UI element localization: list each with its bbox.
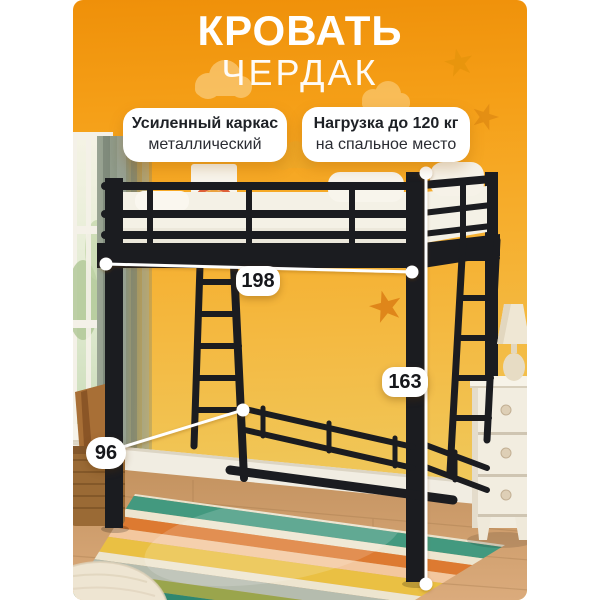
dimension-value-width: 198 xyxy=(236,266,280,296)
bed-post-front-left xyxy=(105,178,123,528)
badge-line-1: Нагрузка до 120 кг xyxy=(314,114,459,135)
front-ladder xyxy=(194,266,244,478)
badge-line-2: металлический xyxy=(148,135,261,156)
feature-badge-frame: Усиленный каркас металлический xyxy=(123,108,287,162)
badge-line-1: Усиленный каркас xyxy=(132,114,278,135)
drawer-knob xyxy=(501,490,511,500)
dimension-value-height: 163 xyxy=(382,367,428,397)
product-card: КРОВАТЬ ЧЕРДАК Усиленный каркас металлич… xyxy=(0,0,600,600)
pillow xyxy=(135,191,189,211)
title-line-1: КРОВАТЬ xyxy=(0,10,600,52)
drawer-knob xyxy=(501,405,511,415)
product-title: КРОВАТЬ ЧЕРДАК xyxy=(0,10,600,91)
dimension-value-depth: 96 xyxy=(86,437,126,469)
table-lamp xyxy=(497,304,527,381)
feature-badge-load: Нагрузка до 120 кг на спальное место xyxy=(302,107,470,162)
drawer-knob xyxy=(501,448,511,458)
star-icon xyxy=(366,286,405,324)
star-icon xyxy=(469,100,502,132)
title-line-2: ЧЕРДАК xyxy=(0,55,600,91)
badge-line-2: на спальное место xyxy=(316,135,456,156)
